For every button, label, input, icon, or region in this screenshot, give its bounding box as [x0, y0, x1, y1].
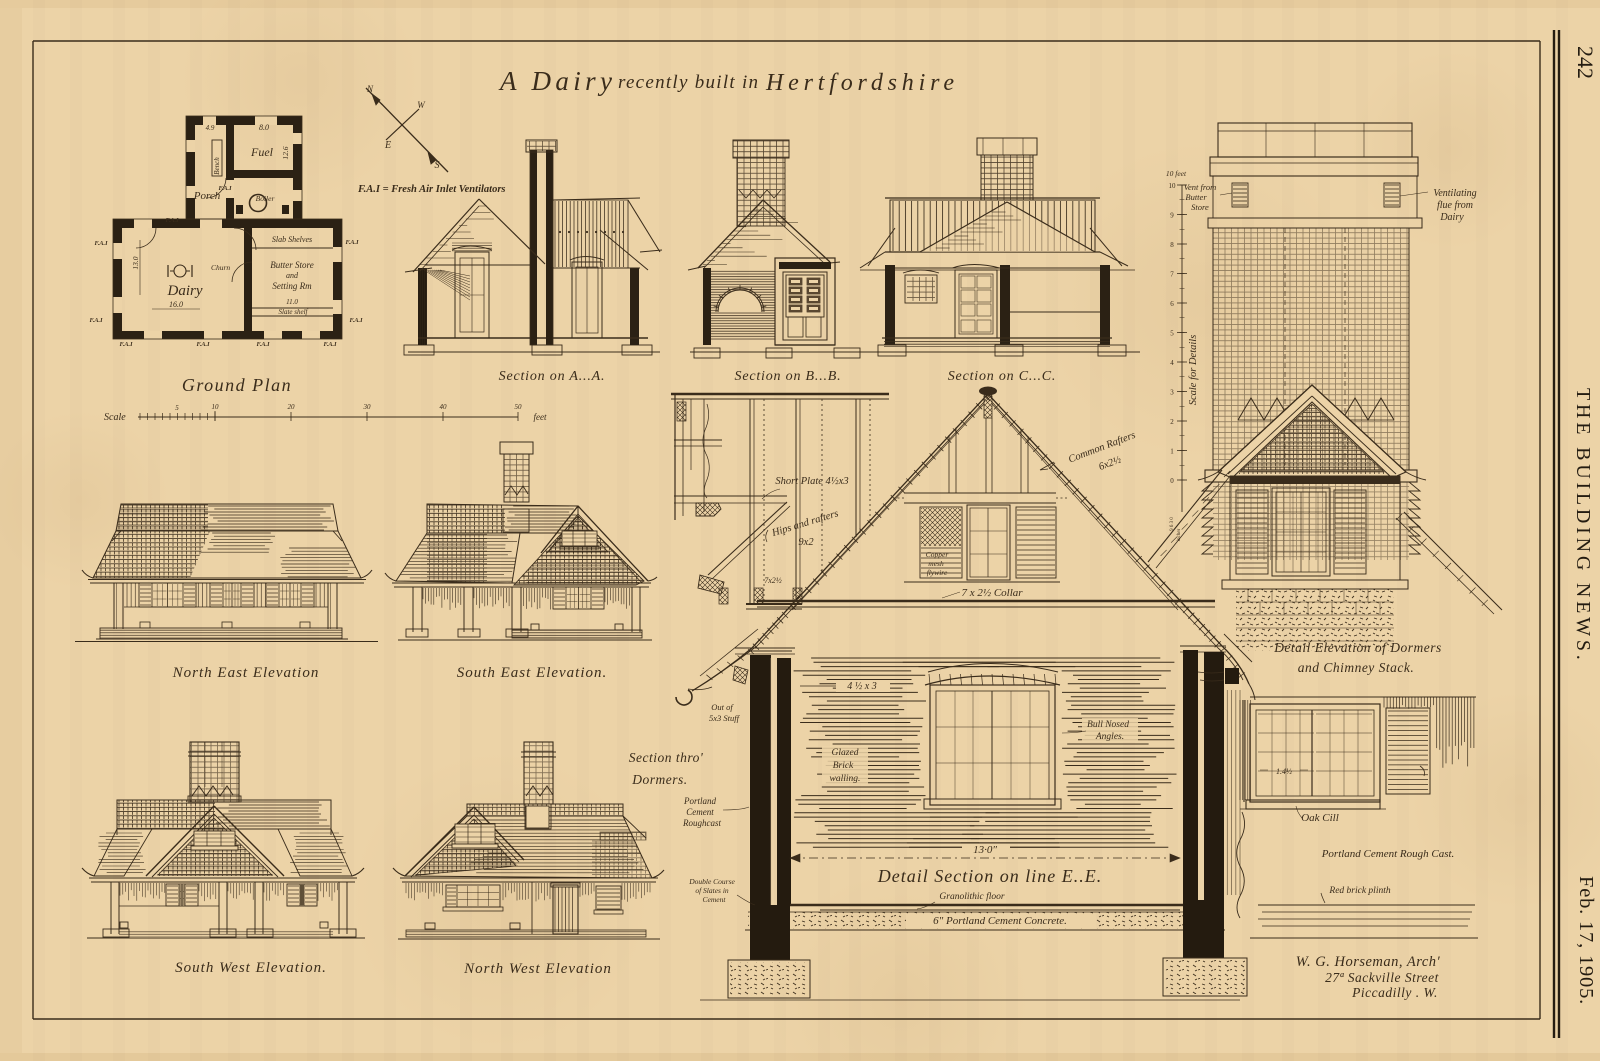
svg-text:5: 5: [1170, 330, 1174, 338]
svg-text:Section on B...B.: Section on B...B.: [735, 369, 842, 384]
svg-text:1: 1: [1170, 448, 1174, 456]
svg-text:10: 10: [212, 403, 220, 411]
svg-text:16.0: 16.0: [169, 300, 183, 309]
svg-text:and: and: [286, 271, 299, 280]
svg-text:Dormers.: Dormers.: [631, 772, 687, 787]
svg-text:F.A.I: F.A.I: [346, 239, 360, 246]
svg-text:Boiler: Boiler: [256, 194, 275, 203]
svg-text:0: 0: [1170, 477, 1174, 485]
svg-text:flywire: flywire: [927, 568, 948, 577]
svg-text:F.A.I: F.A.I: [219, 185, 233, 192]
svg-text:F.A.I: F.A.I: [350, 317, 364, 324]
svg-text:Roughcast: Roughcast: [682, 818, 721, 828]
svg-text:THE BUILDING NEWS.: THE BUILDING NEWS.: [1572, 388, 1594, 664]
svg-text:20: 20: [288, 403, 296, 411]
svg-text:8: 8: [1170, 241, 1174, 249]
svg-text:11.0: 11.0: [286, 298, 298, 306]
svg-text:5x3 Stuff: 5x3 Stuff: [709, 713, 741, 723]
svg-text:Fuel: Fuel: [250, 145, 274, 159]
svg-text:F.A.I: F.A.I: [197, 341, 211, 348]
svg-text:9 6 3 0: 9 6 3 0: [1170, 517, 1175, 531]
svg-text:8.0: 8.0: [259, 123, 269, 132]
svg-text:of Slates in: of Slates in: [695, 886, 729, 895]
svg-text:7: 7: [1170, 271, 1174, 279]
svg-text:inches: inches: [1177, 529, 1182, 542]
svg-text:4.9: 4.9: [206, 124, 215, 132]
svg-text:F.A.I: F.A.I: [257, 341, 271, 348]
svg-text:4: 4: [1170, 359, 1174, 367]
svg-text:Feb. 17, 1905.: Feb. 17, 1905.: [1575, 876, 1597, 1005]
svg-text:Slab Shelves: Slab Shelves: [272, 235, 312, 244]
svg-text:7 x 2½ Collar: 7 x 2½ Collar: [961, 587, 1023, 599]
svg-text:Cement: Cement: [686, 807, 714, 817]
svg-text:Butter: Butter: [1185, 192, 1207, 202]
svg-text:Brick: Brick: [833, 761, 854, 771]
svg-text:2: 2: [1170, 418, 1174, 426]
svg-text:5: 5: [175, 404, 179, 412]
svg-text:Scale: Scale: [104, 412, 126, 423]
svg-text:Short Plate 4½x3: Short Plate 4½x3: [775, 476, 848, 487]
svg-text:10 feet: 10 feet: [1166, 169, 1187, 178]
svg-text:30: 30: [363, 403, 372, 411]
svg-text:Bench: Bench: [213, 157, 221, 175]
svg-text:F.A.I: F.A.I: [95, 240, 109, 247]
svg-text:Dairy: Dairy: [1439, 212, 1464, 223]
svg-text:7x2½: 7x2½: [764, 576, 782, 585]
svg-text:Store: Store: [1191, 202, 1209, 212]
svg-text:4 ½ x 3: 4 ½ x 3: [847, 681, 876, 692]
svg-text:Piccadilly . W.: Piccadilly . W.: [1351, 985, 1438, 1000]
svg-text:flue from: flue from: [1437, 200, 1473, 211]
svg-text:F.A.I: F.A.I: [166, 217, 180, 224]
svg-text:27ª Sackville Street: 27ª Sackville Street: [1325, 970, 1439, 985]
svg-text:North West Elevation: North West Elevation: [463, 961, 612, 977]
svg-text:Portland Cement Rough Cast.: Portland Cement Rough Cast.: [1321, 848, 1455, 860]
svg-text:North East Elevation: North East Elevation: [172, 665, 320, 681]
svg-text:Detail Section on line E..E.: Detail Section on line E..E.: [877, 866, 1102, 886]
svg-text:10: 10: [1169, 182, 1177, 190]
svg-text:Dairy: Dairy: [167, 283, 203, 299]
svg-text:Section thro': Section thro': [629, 750, 704, 765]
svg-text:Ventilating: Ventilating: [1433, 188, 1476, 199]
svg-text:Portland: Portland: [683, 796, 717, 806]
svg-text:Slate shelf: Slate shelf: [279, 308, 309, 316]
svg-text:Glazed: Glazed: [832, 748, 859, 758]
svg-text:Ground Plan: Ground Plan: [182, 375, 292, 395]
svg-text:1.4½: 1.4½: [1276, 767, 1292, 776]
svg-text:S: S: [435, 160, 440, 171]
svg-text:50: 50: [515, 403, 523, 411]
svg-text:3: 3: [1170, 389, 1174, 397]
svg-text:recently built in: recently built in: [618, 72, 758, 93]
svg-text:F.A.I = Fresh Air Inlet Ventil: F.A.I = Fresh Air Inlet Ventilators: [357, 184, 506, 195]
svg-text:Red brick plinth: Red brick plinth: [1328, 886, 1390, 896]
svg-text:9x2: 9x2: [798, 537, 814, 548]
svg-text:12.6: 12.6: [281, 146, 290, 159]
svg-text:Double Course: Double Course: [688, 877, 735, 886]
svg-text:F.A.I: F.A.I: [324, 341, 338, 348]
svg-text:and Chimney Stack.: and Chimney Stack.: [1298, 660, 1415, 675]
svg-text:242: 242: [1573, 46, 1598, 79]
svg-text:Porch: Porch: [193, 190, 221, 202]
svg-text:Angles.: Angles.: [1095, 732, 1124, 742]
svg-text:South West Elevation.: South West Elevation.: [175, 960, 327, 976]
svg-text:W. G. Horseman, Arch′: W. G. Horseman, Arch′: [1296, 954, 1441, 970]
svg-text:A Dairy: A Dairy: [498, 66, 612, 96]
svg-text:Detail Elevation of Dormers: Detail Elevation of Dormers: [1273, 640, 1442, 655]
svg-text:walling.: walling.: [830, 774, 861, 784]
svg-text:F.A.I: F.A.I: [120, 341, 134, 348]
svg-text:Cement: Cement: [703, 895, 727, 904]
svg-text:Section on C...C.: Section on C...C.: [948, 369, 1056, 384]
svg-text:40: 40: [440, 403, 448, 411]
svg-text:Churn: Churn: [211, 263, 230, 272]
svg-text:13.0: 13.0: [131, 256, 140, 269]
svg-text:6: 6: [1170, 300, 1174, 308]
svg-text:F.A.I: F.A.I: [90, 317, 104, 324]
svg-text:Granolithic floor: Granolithic floor: [939, 891, 1004, 902]
svg-text:mesh: mesh: [928, 559, 944, 568]
svg-text:Vent from: Vent from: [1184, 182, 1217, 192]
svg-text:Copper: Copper: [926, 550, 949, 559]
svg-text:Scale for Details: Scale for Details: [1188, 335, 1199, 406]
svg-text:Setting Rm: Setting Rm: [272, 281, 312, 291]
svg-text:N: N: [366, 84, 374, 94]
svg-text:Butter Store: Butter Store: [270, 260, 313, 270]
svg-text:6″ Portland Cement Concrete.: 6″ Portland Cement Concrete.: [933, 915, 1067, 927]
svg-text:E: E: [384, 140, 391, 151]
svg-text:feet: feet: [534, 412, 547, 422]
svg-text:Bull Nosed: Bull Nosed: [1087, 720, 1129, 730]
svg-text:Out of: Out of: [711, 702, 734, 712]
svg-text:Oak Cill: Oak Cill: [1301, 812, 1339, 824]
svg-text:South East Elevation.: South East Elevation.: [457, 665, 608, 681]
svg-text:9: 9: [1170, 212, 1174, 220]
svg-text:13·0″: 13·0″: [973, 844, 997, 856]
svg-text:Section on A...A.: Section on A...A.: [499, 369, 606, 384]
